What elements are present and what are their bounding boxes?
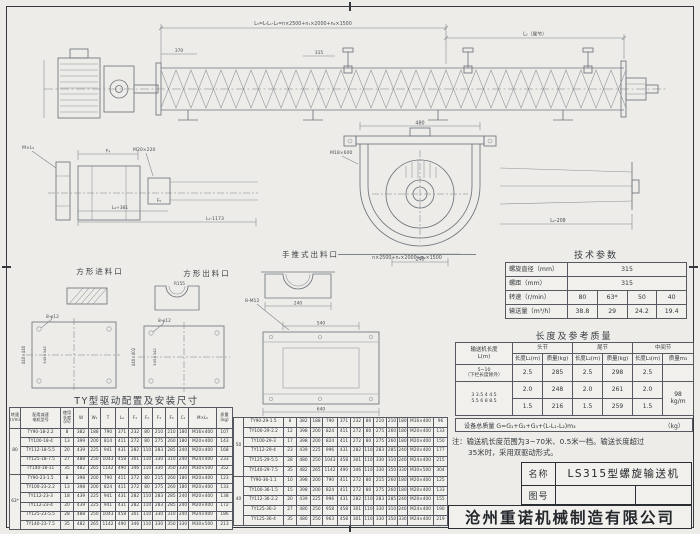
table-cell: 346 <box>129 520 142 529</box>
table-cell: 80 <box>142 429 153 438</box>
table-cell: 330 <box>153 465 166 474</box>
table-cell: 260 <box>166 438 178 447</box>
table-cell: M30×500 <box>189 520 217 529</box>
table-cell: TY140-18-11 <box>21 465 61 474</box>
table-cell: 941 <box>101 502 116 511</box>
table-cell: 315 <box>568 277 687 291</box>
table-cell: 225 <box>89 493 101 502</box>
table-cell: 螺旋直径（mm） <box>506 263 568 277</box>
dim-480: 480 <box>415 121 424 127</box>
table-cell: 431 <box>116 447 129 456</box>
table-cell: 15 <box>284 486 297 496</box>
table-cell: 8 <box>61 474 74 483</box>
drawing-no-label: 图号 <box>522 486 556 507</box>
table-cell: M20×400 <box>189 484 217 493</box>
table-cell: 352 <box>217 465 233 474</box>
table-row: TY125-36-435480250963458301110330350330M… <box>234 515 448 525</box>
dim-mxl5: M×L₅ <box>22 145 34 151</box>
table-cell: 215 <box>153 474 166 483</box>
table-cell: 330 <box>398 515 408 525</box>
table-cell: M24×400 <box>408 506 434 516</box>
table-row: TY140-29-7.53548226511424903461103303503… <box>234 466 448 476</box>
table-cell: 35 <box>284 515 297 525</box>
table-cell: 411 <box>338 486 351 496</box>
table-cell: 431 <box>116 502 129 511</box>
table-row: TY125-23-5.52848825010434583011103303102… <box>10 511 233 520</box>
dim-m18x600: M18×600 <box>330 150 353 156</box>
table-cell: 310 <box>387 457 398 467</box>
table-cell: 200 <box>89 484 101 493</box>
table-cell: M24×400 <box>408 515 434 525</box>
length-mass-body: 5~10 （下栏长度除外）2.52852.52982.53 3.5 4 4.5 … <box>456 365 694 416</box>
dim-f4: F₄ <box>106 149 111 155</box>
table-cell: 790 <box>101 429 116 438</box>
length-mass-header: 输送机长度 L(m)头节尾节中间节长度L₁(m)质量(kg)长度L₂(m)质量(… <box>456 343 694 365</box>
table-cell: 259 <box>603 399 633 416</box>
table-cell: 285 <box>166 447 178 456</box>
table-cell: 250 <box>311 515 323 525</box>
table-cell: 488 <box>74 456 89 465</box>
table-row: 输送机长度 L(m)头节尾节中间节 <box>456 343 694 354</box>
table-cell: 110 <box>364 457 374 467</box>
table-cell: 225 <box>311 496 323 506</box>
table-cell: M24×400 <box>408 457 434 467</box>
table-row: TY125-29-5.52848025010434583011103303102… <box>234 457 448 467</box>
table-cell: 18 <box>61 493 74 502</box>
table-row: TY112-18-5.52043922594143128211028328524… <box>10 447 233 456</box>
table-cell: 110 <box>142 493 153 502</box>
dim-f5: F₅ <box>157 198 162 204</box>
table-cell: 180 <box>398 476 408 486</box>
table-cell: TY100-29-2.2 <box>244 427 284 437</box>
title-block-number-row: 图号 <box>522 485 691 507</box>
table-cell: M20×400 <box>408 427 434 437</box>
table-cell: 长度L₂(m) <box>573 354 603 365</box>
table-cell: 382 <box>74 429 89 438</box>
table-cell: 长度L₁(m) <box>513 354 543 365</box>
table-cell: F₁ <box>129 408 142 429</box>
table-cell: 439 <box>74 502 89 511</box>
table-cell: 963 <box>323 515 338 525</box>
table-cell: 80 <box>568 291 598 305</box>
table-cell: 240 <box>178 502 189 511</box>
table-cell: M20×400 <box>408 486 434 496</box>
table-cell: 150 <box>434 437 448 447</box>
table-cell: 283 <box>374 447 387 457</box>
table-cell: 282 <box>129 493 142 502</box>
table-row: 输送量（m³/h）38.82924.219.4 <box>506 305 687 319</box>
table-cell: L₄ <box>116 408 129 429</box>
table-cell: M20×400 <box>189 474 217 483</box>
drive-table-left-body: 80TY90-18-2.2838218879037123280210210180… <box>10 429 233 530</box>
table-cell: 272 <box>351 476 364 486</box>
table-cell: 225 <box>89 447 101 456</box>
table-cell: 225 <box>311 447 323 457</box>
table-cell: 250 <box>89 511 101 520</box>
table-cell: 283 <box>374 496 387 506</box>
tech-params-body: 螺旋直径（mm）315螺距（mm）315转速（r/min）8063*5040输送… <box>506 263 687 319</box>
table-cell: 1043 <box>101 511 116 520</box>
table-cell: 27 <box>61 456 74 465</box>
table-cell: TY112-29-4 <box>244 447 284 457</box>
table-cell: 330 <box>374 506 387 516</box>
table-cell: 17 <box>284 437 297 447</box>
table-row: TY140-23-7.53548226511424903461103303503… <box>10 520 233 529</box>
table-cell: 411 <box>116 438 129 447</box>
table-cell: 260 <box>166 474 178 483</box>
table-cell: 282 <box>351 496 364 506</box>
table-cell: M20×400 <box>408 496 434 506</box>
table-cell: 1142 <box>101 520 116 529</box>
table-cell: 110 <box>142 511 153 520</box>
table-cell: 180 <box>398 486 408 496</box>
inlet-port-view: M×L₅ F₄ M20×220 F₅ L₄+381 L₁-1173 <box>20 138 260 250</box>
dim-440x440: 440×440 <box>21 345 26 364</box>
table-row: 63*TY90-23-1.583982007904112728021526018… <box>10 474 233 483</box>
table-cell: 399 <box>74 438 89 447</box>
table-cell: 371 <box>338 418 351 428</box>
table-cell: 490 <box>338 466 351 476</box>
table-cell: 80 <box>364 427 374 437</box>
table-cell: M20×400 <box>189 447 217 456</box>
table-cell: 110 <box>142 456 153 465</box>
table-cell: 398 <box>297 427 311 437</box>
table-cell: 200 <box>311 437 323 447</box>
motor <box>58 49 100 118</box>
table-cell: 110 <box>142 447 153 456</box>
table-cell: T <box>101 408 116 429</box>
table-cell: 310 <box>387 506 398 516</box>
dim-l1-1173: L₁-1173 <box>206 216 224 222</box>
push-outlet-view: 240 8-M12 540 640 <box>245 244 450 420</box>
tech-params-title: 技术参数 <box>505 248 687 261</box>
drive-table-title: TY型驱动配置及安装尺寸 <box>44 393 229 407</box>
table-cell: 824 <box>323 437 338 447</box>
table-cell: 458 <box>116 456 129 465</box>
table-cell: 110 <box>142 520 153 529</box>
table-cell: M20×400 <box>408 437 434 447</box>
dim-240-outlet: 240 <box>294 301 303 307</box>
formula-unit: （kg） <box>664 421 684 430</box>
table-cell: W <box>74 408 89 429</box>
main-dimensions: L₃=L-L₁-L₂=n×2500+n₁×2000+n₂×1500 L₂（尾节）… <box>44 21 626 118</box>
table-cell: 216 <box>543 399 573 416</box>
table-cell: 301 <box>351 515 364 525</box>
table-cell: 1142 <box>323 466 338 476</box>
dim-440x402: 440×402 <box>131 347 136 366</box>
note: 注：输送机长度范围为3~70米、0.5米一档。输送长度超过 35米时，采用双驱动… <box>452 437 694 458</box>
table-cell: 315 <box>568 263 687 277</box>
table-row: 5~10 （下栏长度除外）2.52852.52982.5 <box>456 365 694 382</box>
dim-370: 370 <box>175 48 184 54</box>
table-cell: 80 <box>142 474 153 483</box>
table-cell: 275 <box>374 486 387 496</box>
table-cell: 439 <box>297 447 311 457</box>
table-cell: 38.8 <box>568 305 598 319</box>
table-cell: TY90-18-2.2 <box>21 429 61 438</box>
table-cell: 133 <box>434 427 448 437</box>
table-cell: 330 <box>374 515 387 525</box>
table-cell: 330 <box>153 456 166 465</box>
table-cell: 275 <box>153 484 166 493</box>
table-row: TY125-18-7.52748825010434583011103303102… <box>10 456 233 465</box>
tech-params-table: 螺旋直径（mm）315螺距（mm）315转速（r/min）8063*5040输送… <box>505 262 687 319</box>
table-cell: 310 <box>166 456 178 465</box>
table-cell: 431 <box>338 447 351 457</box>
table-cell: 转速（r/min） <box>506 291 568 305</box>
table-cell: 20 <box>61 447 74 456</box>
table-cell: 143 <box>217 438 233 447</box>
table-cell: 301 <box>351 457 364 467</box>
dim-l2-208: L₂-208 <box>550 218 565 224</box>
table-cell: TY112-36-2.2 <box>244 496 284 506</box>
table-cell: 996 <box>323 447 338 457</box>
table-cell: 80 <box>142 438 153 447</box>
drawing-sheet: { "view_labels": { "square_inlet": "方形进料… <box>0 0 700 534</box>
table-row: TY112-23-318439225941431282110283285240M… <box>10 493 233 502</box>
table-cell: 260 <box>166 484 178 493</box>
table-cell: 8 <box>61 429 74 438</box>
table-cell: 110 <box>364 466 374 476</box>
dim-540: 540 <box>317 321 326 327</box>
table-cell: 1043 <box>101 456 116 465</box>
table-cell: 180 <box>178 484 189 493</box>
table-cell: 质量m₃ <box>663 354 694 365</box>
table-cell: 330 <box>374 457 387 467</box>
table-cell: 1.5 <box>573 399 603 416</box>
table-cell: 411 <box>116 484 129 493</box>
table-cell: 2.0 <box>633 382 663 399</box>
table-cell: 180 <box>178 474 189 483</box>
table-cell: 输送机长度 L(m) <box>456 343 513 365</box>
table-cell: 411 <box>338 476 351 486</box>
table-cell: 190 <box>434 506 448 516</box>
table-cell: TY100-18-4 <box>21 438 61 447</box>
table-cell: 260 <box>387 427 398 437</box>
table-cell: 275 <box>374 437 387 447</box>
table-row: 40TY90-36-1.1103982007904112728021526018… <box>234 476 448 486</box>
table-cell: M30×500 <box>408 466 434 476</box>
table-cell: 240 <box>178 456 189 465</box>
table-cell: 200 <box>311 476 323 486</box>
table-cell: 35 <box>284 466 297 476</box>
table-cell: 941 <box>101 493 116 502</box>
table-cell: 40 <box>234 476 244 525</box>
table-cell: 80 <box>364 486 374 496</box>
frame-tick-left <box>2 266 11 268</box>
table-cell: 1.5 <box>633 399 663 416</box>
table-cell: 133 <box>434 486 448 496</box>
table-cell: TY125-18-7.5 <box>21 456 61 465</box>
table-cell: 20 <box>284 496 297 506</box>
table-cell: 958 <box>323 506 338 516</box>
table-cell: 188 <box>311 418 323 428</box>
table-cell: 215 <box>434 457 448 467</box>
dim-8phi12-b: 8-φ12 <box>158 318 171 324</box>
table-cell: 219 <box>434 515 448 525</box>
table-cell: 398 <box>297 476 311 486</box>
table-cell: 261 <box>603 382 633 399</box>
drive-table-header: 转速 (r/min)配用减速 电机型号使用 长度 (m)WW₁TL₄F₁F₂F₃… <box>10 408 233 429</box>
table-cell: 110 <box>364 506 374 516</box>
table-cell: 275 <box>374 427 387 437</box>
table-cell: 中间节 <box>633 343 694 354</box>
table-cell: 80 <box>142 484 153 493</box>
table-cell: 232 <box>129 429 142 438</box>
formula-text: 设备总质量 G=G₁+G₂+G₃+(L-L₁-L₂)m₃ <box>464 421 576 430</box>
table-cell: 27 <box>284 506 297 516</box>
table-cell: 210 <box>387 418 398 428</box>
table-row: TY100-23-2.21339820082441127280275260180… <box>10 484 233 493</box>
table-cell: 285 <box>166 493 178 502</box>
table-cell: 480 <box>297 457 311 467</box>
table-cell: 24.2 <box>627 305 657 319</box>
table-cell: 411 <box>338 437 351 447</box>
table-cell: 2.5 <box>633 365 663 382</box>
table-cell: 13 <box>61 484 74 493</box>
table-cell: M20×400 <box>408 447 434 457</box>
table-cell: W₁ <box>89 408 101 429</box>
table-cell: M20×400 <box>189 502 217 511</box>
table-cell: 35 <box>61 465 74 474</box>
length-mass-title: 长度及参考质量 <box>455 329 693 342</box>
table-cell: 482 <box>74 520 89 529</box>
table-cell: 480 <box>297 515 311 525</box>
table-cell: 3 3.5 4 4.5 5.5 6 8 8.5 <box>456 382 513 416</box>
name-label: 名称 <box>522 463 556 485</box>
dim-l4-381: L₄+381 <box>112 205 128 211</box>
table-cell: 250 <box>89 456 101 465</box>
table-cell: TY100-36-1.5 <box>244 486 284 496</box>
table-row: TY112-36-2.22043922599643128211028328524… <box>234 496 448 506</box>
table-cell: 172 <box>217 502 233 511</box>
table-cell: 96 <box>434 418 448 428</box>
table-cell: 180 <box>178 438 189 447</box>
table-cell: TY90-36-1.1 <box>244 476 284 486</box>
table-cell: 824 <box>323 486 338 496</box>
table-cell: 110 <box>142 502 153 511</box>
table-cell: 233 <box>217 456 233 465</box>
table-cell: 398 <box>297 486 311 496</box>
table-cell: 长度L₃(m) <box>633 354 663 365</box>
dim-8phi12-a: 8-φ12 <box>46 314 59 320</box>
table-cell: TY100-23-2.2 <box>21 484 61 493</box>
table-cell: 头节 <box>513 343 573 354</box>
table-cell: 29 <box>597 305 627 319</box>
table-cell: 200 <box>89 438 101 447</box>
table-cell: 1142 <box>101 465 116 474</box>
table-cell: 质量(kg) <box>543 354 573 365</box>
table-cell: 350 <box>387 466 398 476</box>
table-cell: 790 <box>101 474 116 483</box>
table-cell: 248 <box>543 382 573 399</box>
table-cell: 298 <box>603 365 633 382</box>
table-cell: 398 <box>297 437 311 447</box>
table-cell: 301 <box>129 511 142 520</box>
table-cell: 138 <box>217 493 233 502</box>
table-cell: 1043 <box>323 457 338 467</box>
table-cell: 23 <box>284 447 297 457</box>
drive-table-right-body: 50TY90-29-1.5838218879037123280210210180… <box>234 418 448 526</box>
label-square-inlet: 方形进料口 <box>45 266 155 277</box>
table-cell: 431 <box>116 493 129 502</box>
table-cell: 265 <box>89 465 101 474</box>
table-row: TY100-29-2.21239820082441127280275260180… <box>234 427 448 437</box>
dim-r155: R155 <box>174 281 185 286</box>
table-cell: 330 <box>153 511 166 520</box>
table-cell: 5~10 （下栏长度除外） <box>456 365 513 382</box>
table-cell: 260 <box>387 476 398 486</box>
hanger-bearings <box>343 48 593 73</box>
table-cell: 110 <box>364 447 374 457</box>
table-cell: 272 <box>351 427 364 437</box>
table-cell: 439 <box>297 496 311 506</box>
table-cell: 482 <box>74 465 89 474</box>
table-cell: 80 <box>364 437 374 447</box>
table-cell: 63* <box>10 474 21 529</box>
table-cell: 使用 长度 (m) <box>61 408 74 429</box>
table-cell: 28 <box>61 511 74 520</box>
table-cell: 20 <box>61 502 74 511</box>
table-cell: 2.5 <box>513 365 543 382</box>
table-cell: 215 <box>374 476 387 486</box>
table-cell <box>663 365 694 382</box>
table-cell: 285 <box>387 496 398 506</box>
table-cell: 200 <box>311 486 323 496</box>
table-cell: 371 <box>116 429 129 438</box>
table-cell: 439 <box>74 447 89 456</box>
table-cell: 996 <box>323 496 338 506</box>
table-cell: 2.0 <box>513 382 543 399</box>
table-cell: 480 <box>297 506 311 516</box>
table-cell: 180 <box>398 427 408 437</box>
table-cell: 质量(kg) <box>603 354 633 365</box>
table-cell: 272 <box>129 474 142 483</box>
table-cell: 180 <box>398 418 408 428</box>
table-cell: 配用减速 电机型号 <box>21 408 61 429</box>
table-row: 50TY90-29-1.5838218879037123280210210180… <box>234 418 448 428</box>
table-cell: 50 <box>627 291 657 305</box>
table-cell: 490 <box>116 465 129 474</box>
note-line1: 注：输送机长度范围为3~70米、0.5米一档。输送长度超过 <box>452 437 694 448</box>
table-row: 螺距（mm）315 <box>506 277 687 291</box>
table-cell: 133 <box>217 484 233 493</box>
table-cell: 2.5 <box>573 365 603 382</box>
table-cell: 458 <box>338 457 351 467</box>
table-cell: 260 <box>387 437 398 447</box>
table-cell: 168 <box>217 447 233 456</box>
table-cell: 272 <box>129 438 142 447</box>
table-cell: 180 <box>178 429 189 438</box>
table-cell: 123 <box>217 474 233 483</box>
table-cell: 50 <box>234 418 244 477</box>
table-cell: TY90-23-1.5 <box>21 474 61 483</box>
dim-total-length: L₃=L-L₁-L₂=n×2500+n₁×2000+n₂×1500 <box>254 21 352 27</box>
table-cell: 488 <box>74 511 89 520</box>
table-cell: 301 <box>351 506 364 516</box>
trough <box>44 61 666 117</box>
table-cell: TY112-23-3 <box>21 493 61 502</box>
table-cell: 213 <box>217 520 233 529</box>
table-cell: 1.5 <box>513 399 543 416</box>
table-cell: 210 <box>374 418 387 428</box>
table-cell: 240 <box>178 493 189 502</box>
table-cell: M24×400 <box>189 456 217 465</box>
table-cell: 200 <box>311 427 323 437</box>
table-cell: 941 <box>101 447 116 456</box>
table-cell: 282 <box>129 502 142 511</box>
dim-345x345: 345×345 <box>42 346 47 364</box>
